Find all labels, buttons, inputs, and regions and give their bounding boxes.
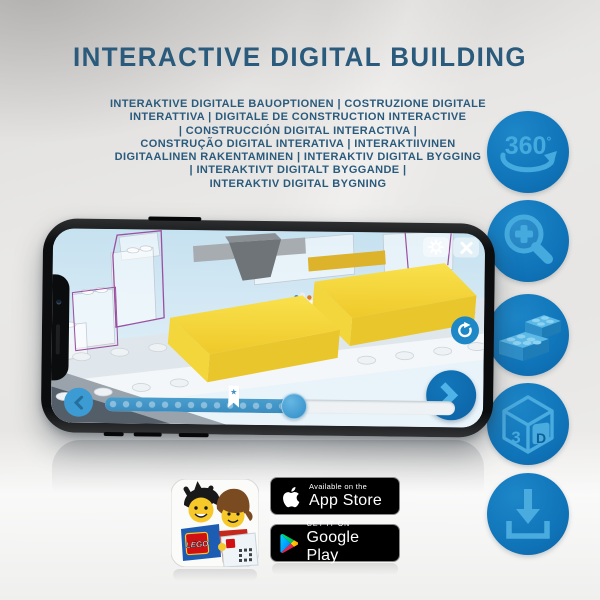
lego-app-icon[interactable]: LEGO bbox=[171, 479, 259, 567]
rotate-view-button[interactable] bbox=[451, 316, 479, 344]
speaker-slit bbox=[56, 324, 60, 354]
download-icon bbox=[487, 473, 569, 555]
camera-icon bbox=[56, 299, 61, 304]
marketing-image: INTERACTIVE DIGITAL BUILDING INTERAKTIVE… bbox=[0, 0, 600, 600]
volume-down-button bbox=[179, 433, 209, 437]
subtitle-line: | INTERAKTIVT DIGITALT BYGGANDE | bbox=[48, 164, 548, 177]
instruction-booklet bbox=[218, 533, 258, 567]
subtitle-line: INTERAKTIV DIGITAL BYGNING bbox=[48, 178, 548, 191]
phone: ★ bbox=[41, 218, 496, 438]
subtitle-line: CONSTRUÇÃO DIGITAL INTERATIVA | INTERAKT… bbox=[48, 138, 548, 151]
svg-text:360°: 360° bbox=[505, 132, 552, 160]
360-rotation-icon: 360° bbox=[487, 111, 569, 193]
svg-text:LEGO: LEGO bbox=[185, 539, 209, 550]
3d-cube-icon: 3 D bbox=[487, 383, 569, 465]
previous-step-button[interactable] bbox=[64, 388, 93, 417]
boy-head bbox=[189, 498, 214, 523]
google-play-badge[interactable]: GET IT ON Google Play bbox=[270, 524, 400, 562]
badge-store-name: App Store bbox=[309, 492, 382, 510]
badge-tagline: Available on the bbox=[309, 482, 382, 491]
subtitle-line: | CONSTRUCCIÓN DIGITAL INTERACTIVA | bbox=[48, 125, 548, 138]
phone-screen: ★ bbox=[51, 228, 485, 427]
subtitle-line: DIGITAALINEN RAKENTAMINEN | INTERAKTIV D… bbox=[48, 151, 548, 164]
rotate-icon bbox=[456, 321, 474, 339]
mute-switch bbox=[104, 432, 124, 436]
zoom-in-icon bbox=[487, 200, 569, 282]
svg-text:3: 3 bbox=[511, 428, 520, 447]
phone-reflection bbox=[52, 440, 484, 510]
svg-text:D: D bbox=[536, 430, 546, 446]
gear-icon bbox=[428, 239, 444, 255]
app-store-badge[interactable]: Available on the App Store bbox=[270, 477, 400, 515]
settings-button[interactable] bbox=[423, 237, 449, 257]
google-play-icon bbox=[280, 532, 298, 555]
feature-360-rotation: 360° bbox=[487, 111, 569, 193]
feature-download bbox=[487, 473, 569, 555]
page-title: INTERACTIVE DIGITAL BUILDING bbox=[12, 42, 588, 73]
chevron-left-icon bbox=[71, 395, 85, 409]
star-icon: ★ bbox=[230, 388, 237, 397]
feature-3d: 3 D bbox=[487, 383, 569, 465]
icon-reflection bbox=[173, 569, 257, 581]
feature-zoom bbox=[487, 200, 569, 282]
phone-notch bbox=[51, 274, 70, 380]
feature-bricks bbox=[487, 294, 569, 376]
badge-tagline: GET IT ON bbox=[306, 521, 389, 528]
close-icon bbox=[459, 241, 472, 254]
lego-bricks-icon bbox=[487, 294, 569, 376]
subtitle-line: INTERAKTIVE DIGITALE BAUOPTIONEN | COSTR… bbox=[48, 98, 548, 111]
close-button[interactable] bbox=[453, 237, 479, 257]
volume-up-button bbox=[134, 432, 162, 436]
badge-store-name: Google Play bbox=[306, 529, 389, 565]
power-button bbox=[148, 217, 201, 222]
apple-icon bbox=[280, 484, 301, 509]
subtitle-line: INTERATTIVA | DIGITALE DE CONSTRUCTION I… bbox=[48, 111, 548, 124]
subtitle-translations: INTERAKTIVE DIGITALE BAUOPTIONEN | COSTR… bbox=[48, 98, 548, 191]
slider-fill bbox=[105, 397, 296, 413]
